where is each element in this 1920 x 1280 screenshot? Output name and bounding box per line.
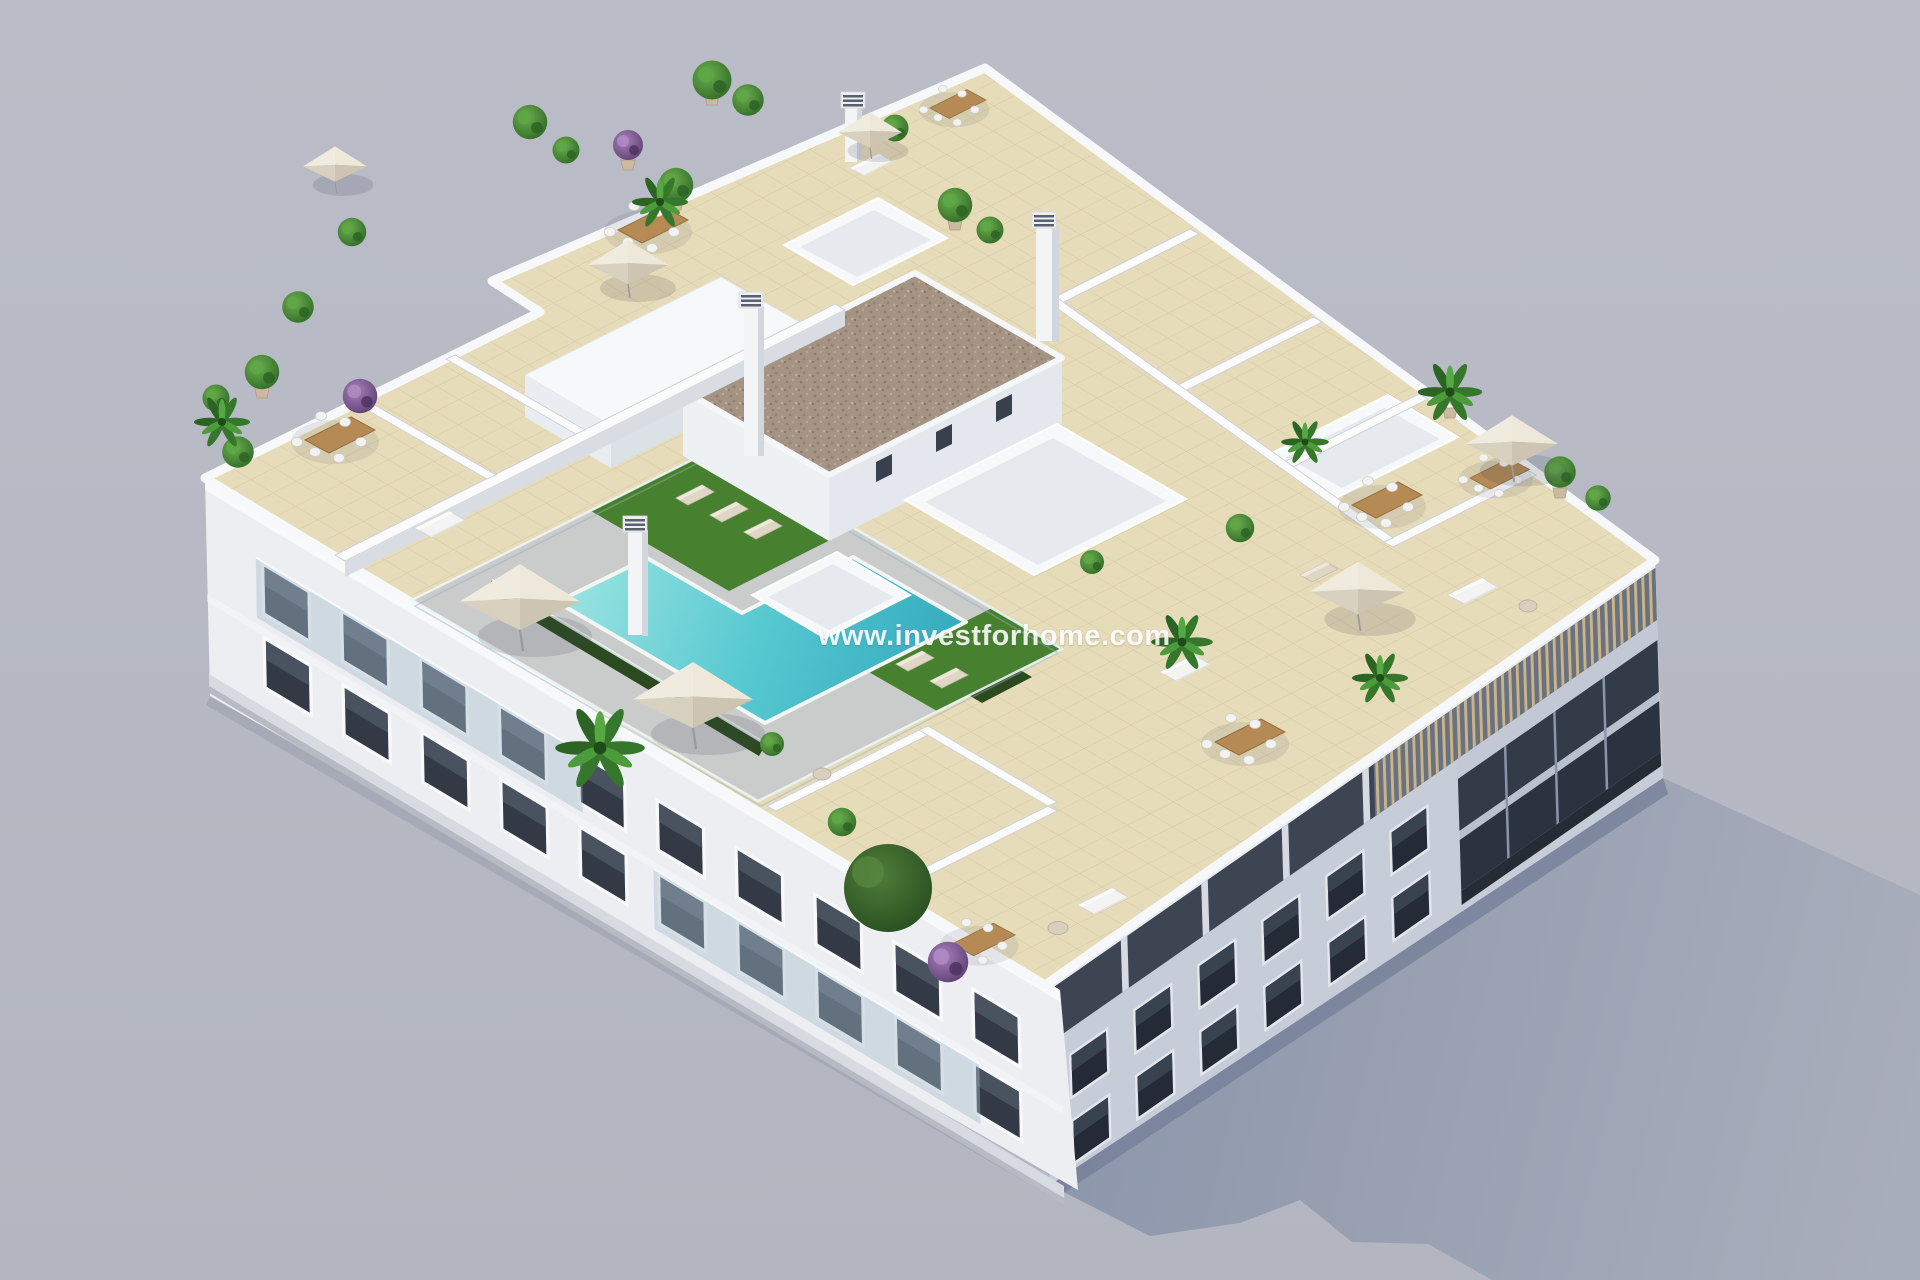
- tree: [844, 844, 932, 932]
- plant: [1080, 550, 1104, 574]
- watermark-text: www.investforhome.com: [818, 620, 1118, 653]
- plant-pot: [1553, 488, 1567, 498]
- plant: [977, 217, 1004, 244]
- plant: [222, 436, 254, 468]
- coffee-table: [813, 768, 831, 780]
- plant: [338, 218, 367, 247]
- plant-pot: [255, 388, 269, 398]
- plant: [1226, 514, 1255, 543]
- render-stage: www.investforhome.com: [0, 0, 1920, 1280]
- purple-plant: [613, 130, 643, 160]
- plant-pot: [621, 160, 635, 170]
- chimney: [1032, 212, 1059, 342]
- plant: [732, 84, 764, 116]
- coffee-table: [1519, 600, 1537, 612]
- plant: [282, 291, 314, 323]
- tree-highlight: [852, 856, 884, 888]
- plant: [553, 137, 580, 164]
- plant: [938, 188, 973, 223]
- plant: [1585, 485, 1611, 511]
- purple-plant: [928, 942, 969, 983]
- plant: [245, 355, 280, 390]
- plant: [513, 105, 548, 140]
- plant: [828, 808, 857, 837]
- coffee-table: [1048, 922, 1068, 935]
- plant: [693, 61, 732, 100]
- purple-plant: [343, 379, 378, 414]
